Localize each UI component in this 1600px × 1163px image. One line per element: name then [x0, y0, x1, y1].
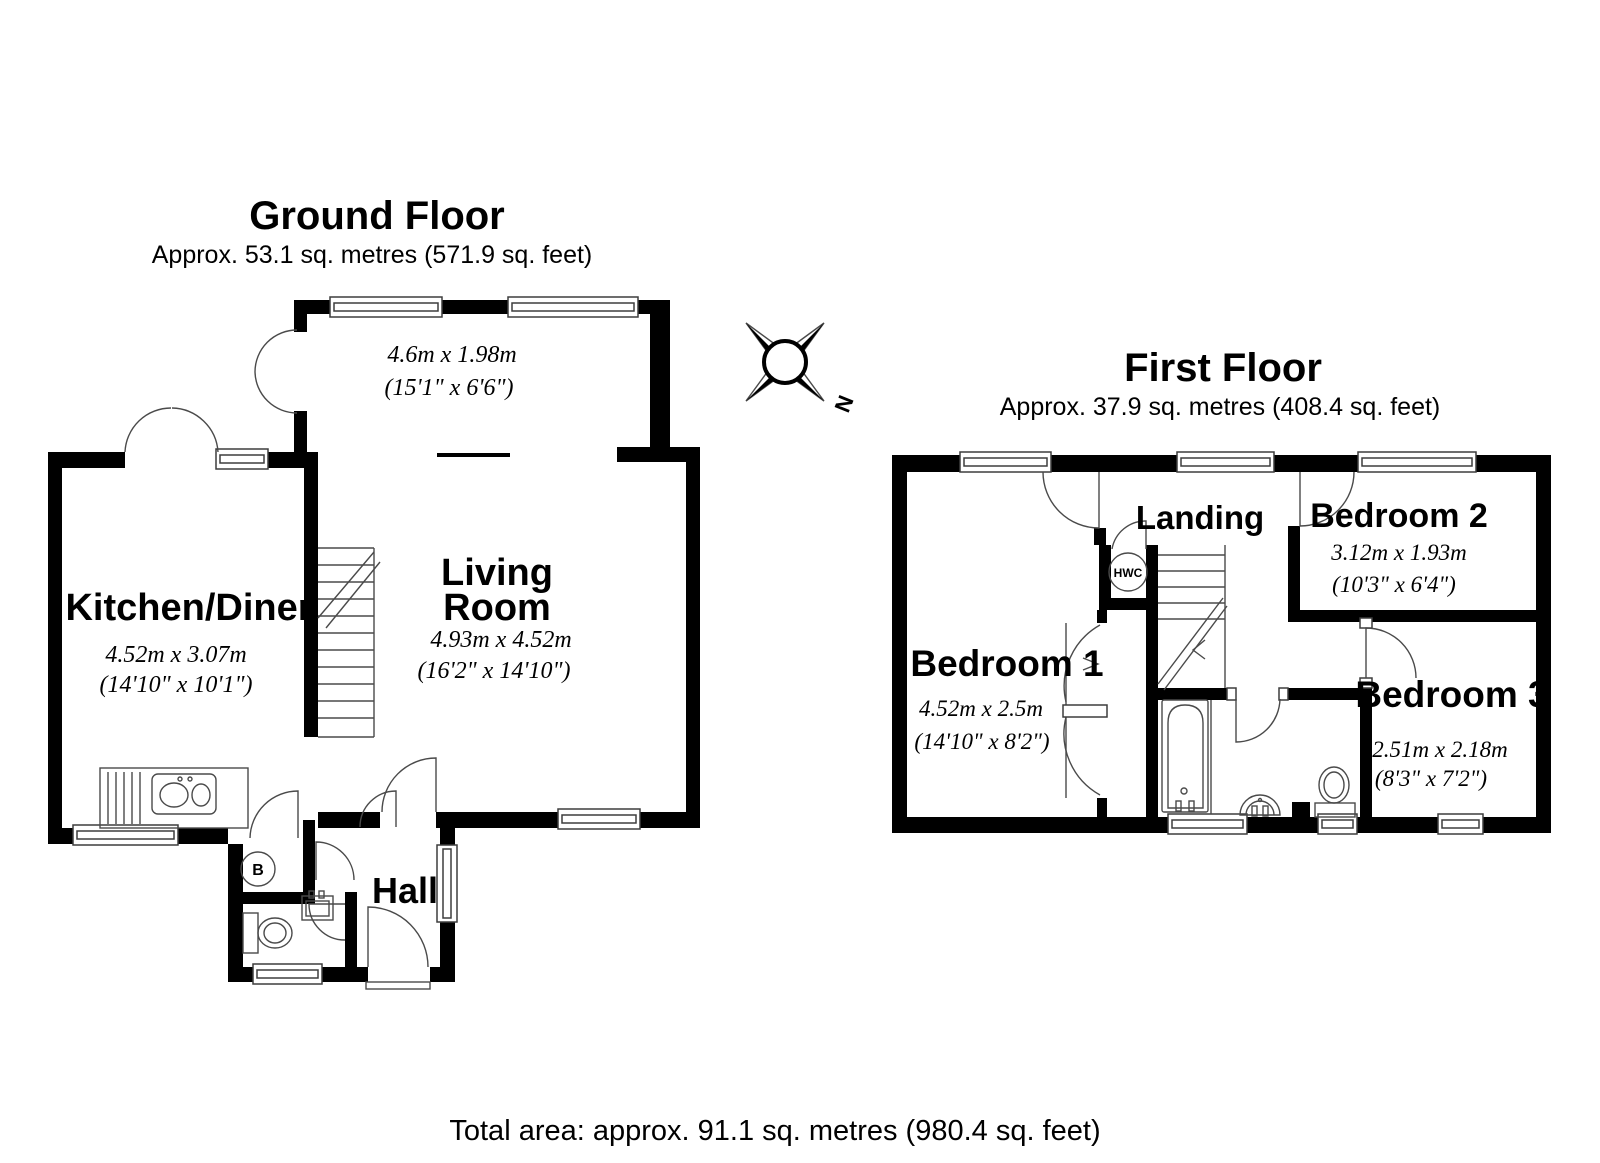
compass-icon: N [746, 323, 859, 416]
living-dim-m: 4.93m x 4.52m [430, 627, 571, 653]
window [1358, 452, 1476, 472]
extension-dim-m: 4.6m x 1.98m [387, 342, 516, 368]
bedroom1-label: Bedroom 1 [910, 643, 1103, 684]
living-dim-ft: (16'2" x 14'10") [417, 658, 570, 684]
window [508, 297, 638, 317]
ground-floor-plan: B 4.6m x 1.98m (15'1" x 6'6") Kitchen/Di… [48, 297, 700, 989]
kitchen-dim-m: 4.52m x 3.07m [105, 642, 246, 668]
bathroom-door [1236, 699, 1280, 742]
first-floor-plan: HWC Land [892, 452, 1551, 834]
bathtub [1162, 700, 1211, 814]
bedroom3-dim-ft: (8'3" x 7'2") [1375, 766, 1487, 791]
hall-label: Hall [372, 870, 438, 911]
bedroom2-dim-m: 3.12m x 1.93m [1330, 540, 1466, 565]
wc-sink [302, 891, 333, 920]
window [330, 297, 442, 317]
wc-door [309, 904, 345, 940]
floorplan-drawing: B 4.6m x 1.98m (15'1" x 6'6") Kitchen/Di… [0, 0, 1600, 1163]
window [1177, 452, 1274, 472]
window [960, 452, 1051, 472]
bedroom2-dim-ft: (10'3" x 6'4") [1332, 572, 1456, 597]
front-door [368, 907, 428, 967]
kitchen-french-doors [125, 408, 218, 452]
front-door-sill [366, 982, 430, 989]
bathroom-sink [1240, 795, 1280, 816]
hwc-cylinder: HWC [1109, 553, 1147, 591]
bedroom1-dim-ft: (14'10" x 8'2") [914, 729, 1049, 754]
ground-stairs [318, 548, 380, 737]
hall-living-door [382, 758, 436, 812]
floorplan-page: Ground Floor Approx. 53.1 sq. metres (57… [0, 0, 1600, 1163]
living-room-label-2: Room [443, 587, 551, 629]
bedroom1-door [1043, 472, 1099, 528]
bedroom1-dim-m: 4.52m x 2.5m [919, 696, 1043, 721]
bathroom-toilet [1315, 767, 1355, 817]
bedroom3-label: Bedroom 3 [1355, 674, 1548, 715]
kitchen-counter [100, 768, 248, 828]
corridor-door [316, 842, 354, 880]
kitchen-label: Kitchen/Diner [65, 587, 312, 629]
extension-double-door [255, 330, 297, 413]
bedroom3-dim-m: 2.51m x 2.18m [1372, 737, 1507, 762]
window [1168, 814, 1247, 834]
window [558, 809, 640, 829]
bedroom2-label: Bedroom 2 [1310, 497, 1488, 535]
kitchen-sink [152, 774, 216, 814]
window [253, 964, 322, 984]
boiler: B [241, 852, 275, 886]
window [216, 449, 268, 469]
window [437, 845, 457, 922]
extension-dim-ft: (15'1" x 6'6") [384, 375, 513, 401]
kitchen-hall-door [250, 791, 298, 838]
window [1438, 814, 1483, 834]
boiler-label: B [252, 862, 264, 879]
first-stairs [1158, 545, 1227, 690]
kitchen-dim-ft: (14'10" x 10'1") [99, 672, 252, 698]
landing-label: Landing [1136, 499, 1264, 536]
hwc-label: HWC [1114, 566, 1143, 580]
north-label: N [829, 392, 858, 416]
wc-toilet [243, 913, 292, 953]
bedroom3-door [1366, 628, 1416, 678]
